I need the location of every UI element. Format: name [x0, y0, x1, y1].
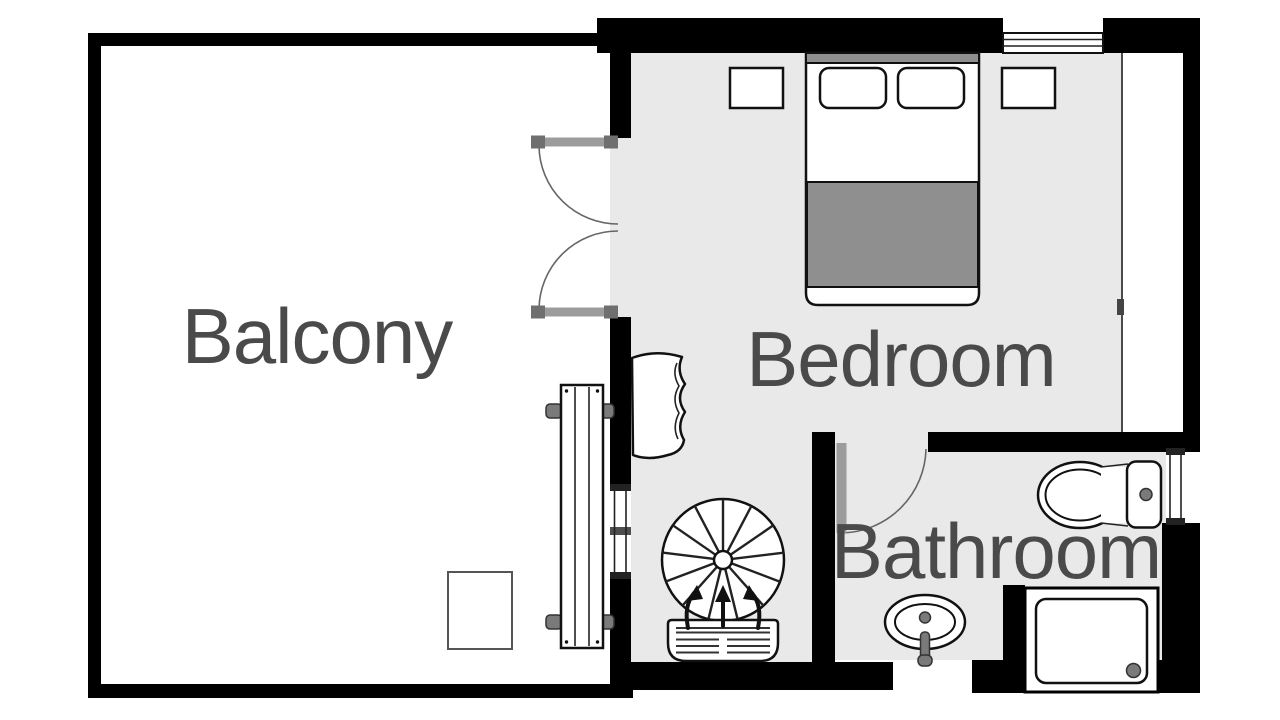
bedroom-top-window [1003, 33, 1103, 53]
shower-drain [1127, 664, 1141, 678]
bed-blanket [807, 182, 978, 287]
planter-box [448, 572, 512, 649]
vestibule-bottom-wall [610, 662, 893, 690]
sink-drain-cap [918, 655, 932, 666]
french-door-leaf-top [544, 138, 605, 147]
balcony-side-window [610, 484, 631, 579]
balcony-top-wall [88, 33, 600, 46]
bathroom-side-window [1166, 448, 1185, 525]
balcony-left-wall [88, 33, 101, 698]
left-wall-middle [610, 317, 631, 489]
pillow-left [820, 68, 886, 108]
staircase-center-post [714, 551, 732, 569]
bed-headboard [806, 53, 979, 63]
shower-tray [1025, 588, 1158, 692]
toilet-flush-button [1140, 489, 1152, 501]
bathroom-label: Bathroom [831, 512, 1161, 590]
balcony-bottom-wall [88, 684, 633, 698]
double-bed [806, 53, 979, 305]
bedroom-right-wall [1183, 18, 1200, 432]
sink-faucet [920, 612, 931, 623]
bedroom-top-wall-left [597, 18, 1003, 53]
balcony-label: Balcony [182, 297, 453, 375]
nightstand-right [1002, 68, 1055, 108]
french-door-swing-top [539, 146, 618, 224]
pillow-right [898, 68, 964, 108]
french-door-leaf-bottom [544, 308, 605, 317]
wardrobe-strip [1117, 53, 1183, 432]
floor-plan: Balcony Bedroom Bathroom [0, 0, 1280, 720]
wardrobe-handle [1117, 299, 1124, 315]
french-door-wall-upper [610, 40, 631, 138]
bathroom-right-wall [1162, 523, 1200, 663]
balcony-bench [546, 385, 614, 648]
bedroom-label: Bedroom [746, 320, 1056, 398]
armchair [632, 353, 685, 458]
nightstand-left [730, 68, 783, 108]
french-doors [531, 136, 618, 319]
bedroom-bathroom-divider-wall [928, 432, 1200, 452]
french-door-swing-bottom [539, 231, 618, 309]
shower-partition-stub [1003, 585, 1025, 660]
